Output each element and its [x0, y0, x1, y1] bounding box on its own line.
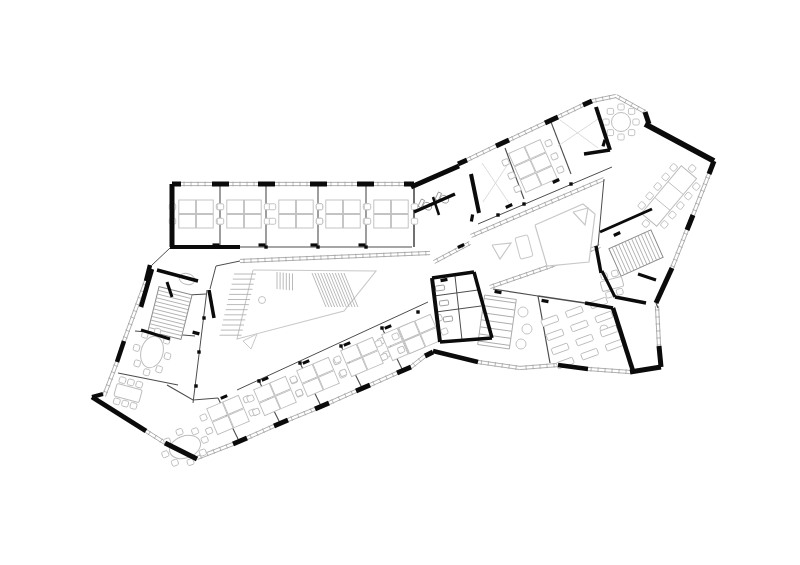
chair [134, 360, 141, 368]
chair [119, 376, 127, 383]
wall [233, 438, 247, 444]
desk-cluster [500, 136, 566, 197]
window-strip [671, 229, 689, 268]
wall [315, 403, 329, 409]
window-strip [655, 306, 661, 346]
desk-cluster [169, 200, 222, 228]
chair [611, 270, 619, 277]
door-mark [470, 214, 474, 221]
window-strip [489, 265, 548, 288]
wc-fixture [435, 285, 445, 291]
wall [656, 268, 672, 303]
desk [196, 215, 213, 229]
chair [550, 152, 558, 160]
desk [326, 200, 343, 214]
chair [316, 218, 322, 224]
wc-fixture [443, 316, 453, 322]
door-mark [541, 299, 548, 303]
chair [143, 368, 150, 376]
chair [205, 427, 213, 435]
seminar-table [581, 348, 599, 360]
column [257, 379, 260, 382]
desk-cluster [217, 200, 270, 228]
wall [432, 272, 474, 278]
wall [645, 124, 714, 161]
chair [161, 450, 169, 458]
wall [425, 352, 433, 356]
window-strip [246, 425, 274, 440]
staircase [609, 230, 663, 276]
partition-wall [167, 385, 218, 400]
chair [642, 219, 651, 228]
chair [199, 449, 207, 457]
door-mark [505, 203, 513, 209]
door-mark [311, 243, 318, 246]
seminar-table [570, 320, 588, 332]
chair [199, 413, 207, 421]
chair [130, 402, 138, 409]
seminar-table [565, 306, 583, 318]
desk [296, 200, 313, 214]
window-strip [328, 390, 356, 405]
column [496, 213, 499, 216]
wall [356, 385, 370, 391]
window-strip [588, 367, 630, 374]
wall [615, 297, 646, 303]
seminar-table [551, 343, 569, 355]
desk [374, 215, 391, 229]
desk [227, 200, 244, 214]
chair [133, 344, 140, 352]
wall [709, 161, 714, 174]
wall [613, 308, 633, 371]
window-strip [374, 182, 404, 187]
partition-wall [538, 296, 550, 363]
chair [607, 108, 613, 114]
desk [391, 200, 408, 214]
desk [326, 215, 343, 229]
seminar-table [575, 334, 593, 346]
chair [269, 218, 275, 224]
chair [618, 134, 624, 140]
window-strip [287, 408, 315, 422]
floor-plan-page [0, 0, 800, 565]
window-strip [369, 372, 397, 387]
chair [628, 108, 634, 114]
wall [545, 117, 558, 123]
door-mark [259, 243, 266, 246]
desk [227, 215, 244, 229]
window-strip [520, 363, 558, 370]
seminar-table [541, 315, 559, 327]
chair [688, 164, 697, 173]
door-mark [302, 359, 310, 365]
desk-cluster [269, 200, 322, 228]
chair [127, 379, 135, 386]
wall [583, 101, 592, 105]
window-strip [180, 182, 212, 187]
wall [411, 166, 459, 187]
courtyard-bench [515, 235, 533, 260]
chair [201, 436, 209, 444]
round-table [603, 104, 639, 140]
void-diagonal-mark [558, 117, 601, 146]
desk [244, 200, 261, 214]
column [339, 344, 342, 347]
chair [501, 158, 509, 166]
chair [164, 352, 171, 360]
chair [113, 398, 121, 405]
chair [217, 204, 223, 210]
floor-plan-canvas [0, 0, 800, 565]
column [380, 326, 383, 329]
desk [179, 215, 196, 229]
chair [121, 400, 129, 407]
chair [316, 204, 322, 210]
courtyard-shape [492, 243, 511, 259]
window-strip [275, 182, 310, 187]
window-strip [410, 355, 426, 369]
door-mark [359, 243, 366, 246]
chair [411, 204, 417, 210]
wall [209, 290, 214, 318]
partition-wall [598, 179, 604, 246]
chair [135, 381, 143, 388]
door-mark [220, 394, 228, 400]
chair [628, 130, 634, 136]
door-mark [613, 231, 621, 237]
window-strip [145, 430, 166, 445]
partition-wall [216, 261, 240, 266]
door-mark [213, 243, 220, 246]
layer-partitions [118, 122, 658, 441]
door-mark [384, 324, 392, 330]
chair [440, 327, 448, 335]
desk [179, 200, 196, 214]
window-strip [327, 182, 357, 187]
oval-table [156, 421, 214, 473]
chair [269, 204, 275, 210]
column [194, 384, 197, 387]
desk-cluster [316, 200, 369, 228]
chair [633, 119, 639, 125]
desk-cluster [364, 200, 417, 228]
desk [391, 215, 408, 229]
seminar-table [605, 339, 623, 351]
window-strip [508, 122, 545, 142]
chair [411, 218, 417, 224]
round-chair [522, 324, 532, 334]
rect-table [112, 376, 144, 410]
chair [191, 427, 199, 435]
desk [244, 215, 261, 229]
wall [474, 272, 492, 338]
partition-wall [152, 248, 170, 265]
window-strip [592, 94, 617, 102]
chair [616, 288, 624, 295]
wall [274, 420, 288, 426]
chair [171, 459, 179, 467]
window-strip [229, 182, 258, 187]
chair [175, 428, 183, 436]
chair [155, 365, 162, 373]
column [202, 316, 205, 319]
chair [556, 166, 564, 174]
wall [584, 150, 610, 154]
round-chair [518, 307, 528, 317]
window-strip [557, 104, 583, 119]
window-strip [240, 251, 430, 263]
chair [603, 119, 609, 125]
wall [687, 215, 693, 230]
wall [458, 160, 467, 164]
layer-furniture [112, 104, 708, 473]
column [569, 182, 572, 185]
wall [117, 341, 124, 362]
round-chair [259, 297, 266, 304]
wall [397, 367, 411, 373]
wall [659, 346, 661, 367]
chair [618, 104, 624, 110]
door-mark [343, 341, 351, 347]
wall [433, 351, 478, 362]
window-strip [466, 145, 496, 162]
partition-wall [455, 276, 462, 340]
seminar-table [546, 329, 564, 341]
chair [364, 218, 370, 224]
chair [364, 204, 370, 210]
conference-table [630, 155, 708, 238]
desk [279, 215, 296, 229]
seminar-table [595, 311, 613, 323]
desk [343, 200, 360, 214]
column [522, 202, 525, 205]
wall [471, 174, 479, 213]
wall [92, 394, 103, 397]
desk [343, 215, 360, 229]
chair [217, 218, 223, 224]
void-diagonal-mark [560, 120, 598, 148]
chair [544, 139, 552, 147]
door-mark [192, 331, 200, 336]
round-chair [516, 339, 526, 349]
partition-wall [434, 290, 478, 296]
desk [279, 200, 296, 214]
desk [374, 200, 391, 214]
wall [558, 365, 588, 369]
window-strip [478, 360, 520, 370]
door-mark [440, 278, 447, 282]
wall [496, 140, 509, 146]
window-strip [433, 242, 470, 264]
column [416, 310, 419, 313]
wall [630, 367, 661, 372]
column [298, 361, 301, 364]
chair [513, 185, 521, 193]
desk [296, 215, 313, 229]
wall [596, 246, 601, 273]
desk [196, 200, 213, 214]
wall [585, 303, 613, 308]
partition-wall [210, 266, 216, 289]
column [197, 350, 200, 353]
wall [638, 274, 656, 280]
wc-fixture [439, 300, 449, 306]
chair [607, 130, 613, 136]
